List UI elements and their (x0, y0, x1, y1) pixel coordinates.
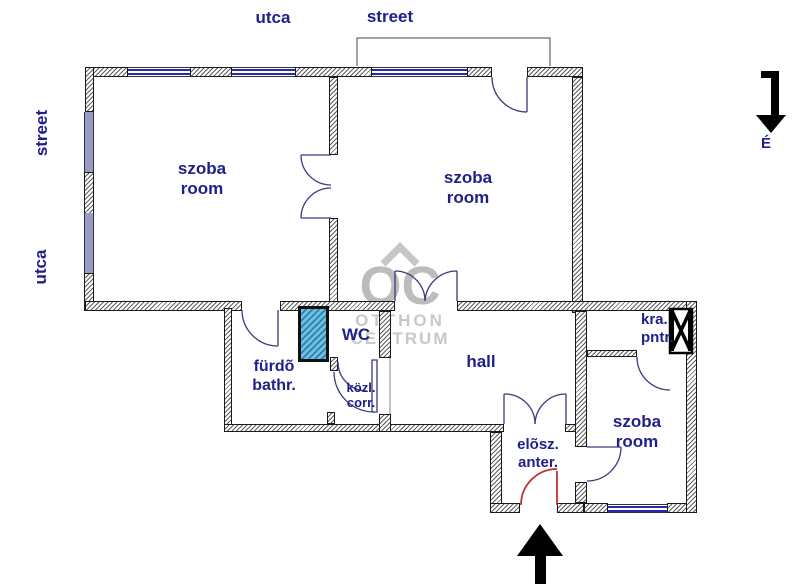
street-label-top-left: utca (238, 8, 308, 28)
room1-label-hu: szoba (157, 159, 247, 179)
doors-and-symbols (0, 0, 800, 584)
street-label-top-right: street (355, 7, 425, 27)
anteroom-label-hu: elõsz. (502, 436, 574, 454)
entrance-door-arc (521, 469, 557, 505)
door-arc (301, 188, 331, 218)
door-arc (242, 310, 278, 346)
north-label: É (752, 135, 780, 153)
room3-label: szoba room (592, 412, 682, 452)
door-arc (535, 394, 566, 424)
street-label-side-lower: utca (31, 232, 51, 302)
door-arc (637, 357, 670, 390)
hall-label: hall (449, 352, 513, 372)
floor-plan: OC OTTHON CENTRUM (0, 0, 800, 584)
entrance-door (521, 469, 557, 505)
room1-label: szoba room (157, 159, 247, 199)
door-arc (587, 447, 621, 481)
corridor-label: közl. corr. (330, 380, 392, 411)
door-arc (492, 77, 527, 112)
pantry-label: kra. pntr. (641, 311, 685, 346)
room1-label-en: room (157, 179, 247, 199)
pantry-label-en: pntr. (641, 329, 685, 347)
room2-label-en: room (423, 188, 513, 208)
bathroom-label-hu: fürdõ (228, 358, 320, 377)
pantry-label-hu: kra. (641, 311, 685, 329)
room3-label-en: room (592, 432, 682, 452)
door-arc (301, 155, 331, 185)
north-arrow-icon (756, 71, 786, 133)
room3-label-hu: szoba (592, 412, 682, 432)
anteroom-label-en: anter. (502, 454, 574, 472)
street-label-side-upper: street (32, 98, 52, 168)
corridor-label-hu: közl. (330, 380, 392, 395)
corridor-label-en: corr. (330, 395, 392, 410)
room2-label: szoba room (423, 168, 513, 208)
wc-label: WC (331, 325, 381, 345)
door-arc (425, 271, 457, 301)
street-bracket-line (357, 38, 550, 66)
entrance-arrow-icon (517, 524, 563, 584)
door-arc (504, 394, 535, 424)
bathroom-label: fürdõ bathr. (228, 358, 320, 396)
room2-label-hu: szoba (423, 168, 513, 188)
anteroom-label: elõsz. anter. (502, 436, 574, 471)
bathroom-label-en: bathr. (228, 377, 320, 396)
door-arc (395, 271, 425, 301)
